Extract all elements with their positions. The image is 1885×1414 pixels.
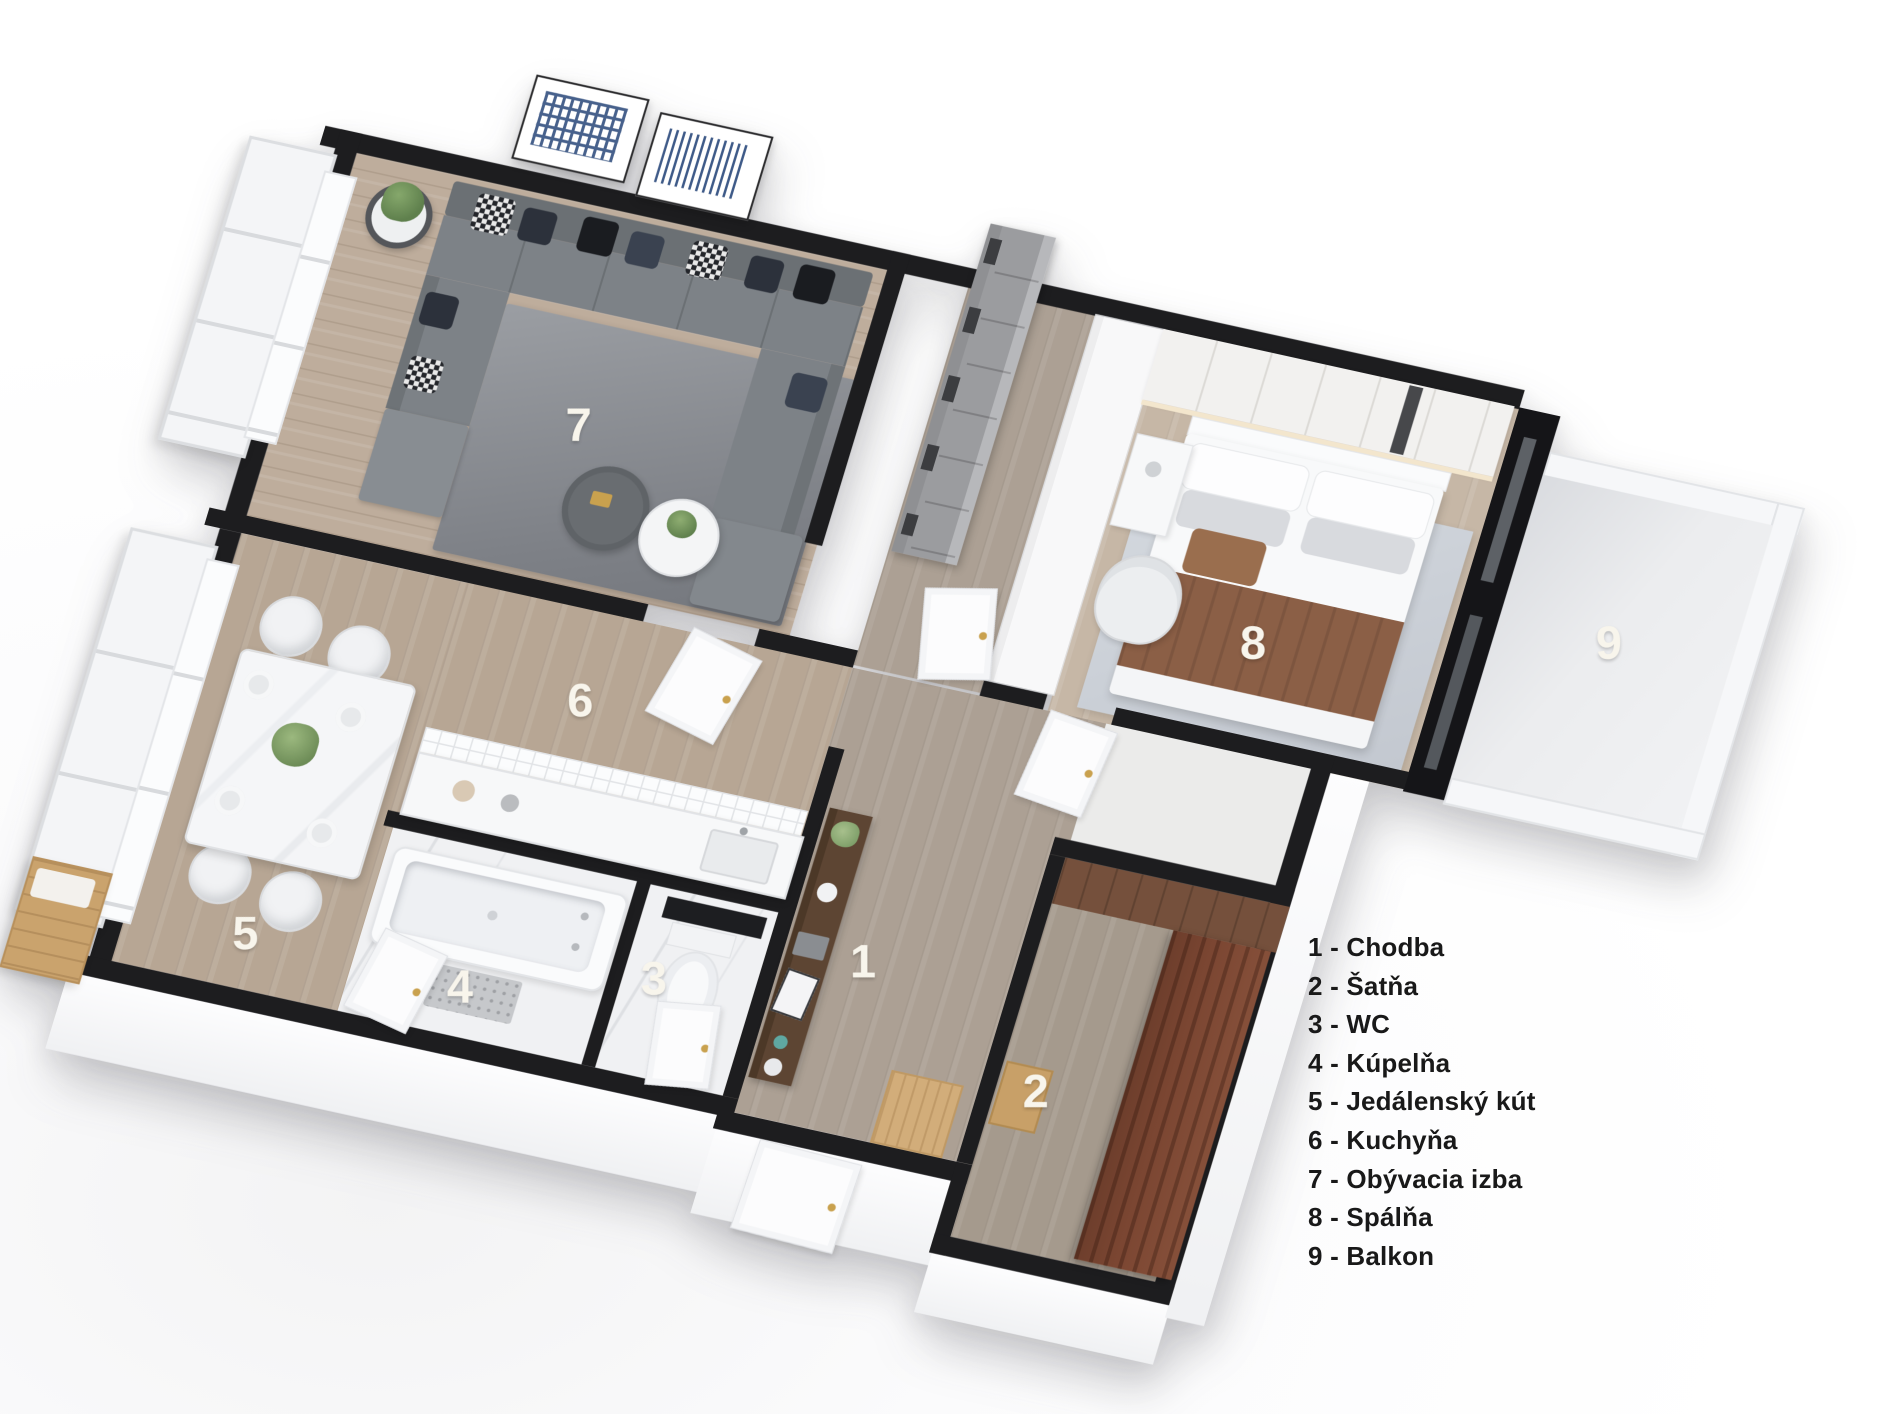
- console-flowers: [827, 819, 862, 850]
- room-4-number-label: 4: [447, 959, 473, 1014]
- bench-cushion: [29, 867, 96, 909]
- corridor-door-leaf: [917, 588, 998, 681]
- wall-art-frame-1: [511, 74, 650, 183]
- wall-art-1-pattern: [530, 91, 628, 163]
- room-2-number-label: 2: [1023, 1063, 1049, 1118]
- console-books: [792, 931, 830, 961]
- wardrobe-dark-slot: [1389, 385, 1423, 455]
- legend-item-3: 3 - WC: [1308, 1005, 1536, 1044]
- legend-item-8: 8 - Spálňa: [1308, 1198, 1536, 1237]
- legend-item-6: 6 - Kuchyňa: [1308, 1121, 1536, 1160]
- room-5-number-label: 5: [232, 905, 258, 960]
- legend-item-7: 7 - Obývacia izba: [1308, 1160, 1536, 1199]
- legend-item-9: 9 - Balkon: [1308, 1237, 1536, 1276]
- legend-item-5: 5 - Jedálenský kút: [1308, 1082, 1536, 1121]
- legend-item-1: 1 - Chodba: [1308, 928, 1536, 967]
- console-sphere: [762, 1057, 785, 1078]
- console-lamp: [814, 881, 839, 904]
- room-3-number-label: 3: [641, 950, 667, 1005]
- room-legend: 1 - Chodba2 - Šatňa3 - WC4 - Kúpelňa5 - …: [1308, 928, 1536, 1275]
- room-1-number-label: 1: [850, 933, 876, 988]
- console-vase-teal: [772, 1034, 790, 1050]
- legend-item-2: 2 - Šatňa: [1308, 967, 1536, 1006]
- room-8-number-label: 8: [1240, 615, 1266, 670]
- room-7-number-label: 7: [566, 397, 592, 452]
- legend-item-4: 4 - Kúpelňa: [1308, 1044, 1536, 1083]
- floorplan-screenshot: 123456789 1 - Chodba2 - Šatňa3 - WC4 - K…: [0, 0, 1885, 1414]
- room-9-number-label: 9: [1596, 615, 1622, 670]
- room-6-number-label: 6: [567, 672, 593, 727]
- wc-door-leaf: [644, 1001, 721, 1090]
- wall-art-2-pattern: [654, 128, 752, 200]
